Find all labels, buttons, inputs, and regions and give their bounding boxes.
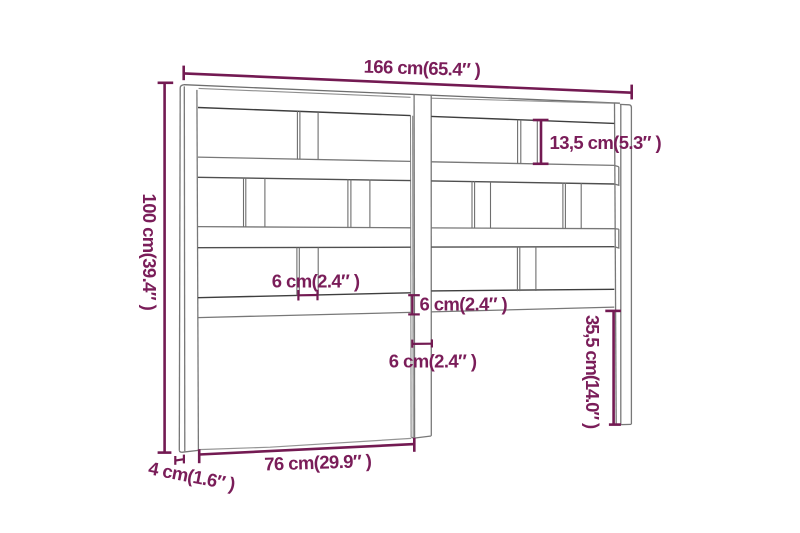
svg-text:35,5 cm(14.0″ ): 35,5 cm(14.0″ ) [582, 315, 603, 429]
svg-text:76 cm(29.9″ ): 76 cm(29.9″ ) [264, 450, 372, 474]
svg-text:6 cm(2.4″ ): 6 cm(2.4″ ) [272, 270, 360, 291]
svg-text:13,5 cm(5.3″ ): 13,5 cm(5.3″ ) [550, 132, 662, 153]
svg-text:6 cm(2.4″ ): 6 cm(2.4″ ) [389, 350, 477, 371]
svg-text:6 cm(2.4″ ): 6 cm(2.4″ ) [420, 293, 508, 314]
svg-text:100 cm(39.4″ ): 100 cm(39.4″ ) [139, 194, 160, 311]
svg-text:166 cm(65.4″ ): 166 cm(65.4″ ) [363, 56, 481, 81]
